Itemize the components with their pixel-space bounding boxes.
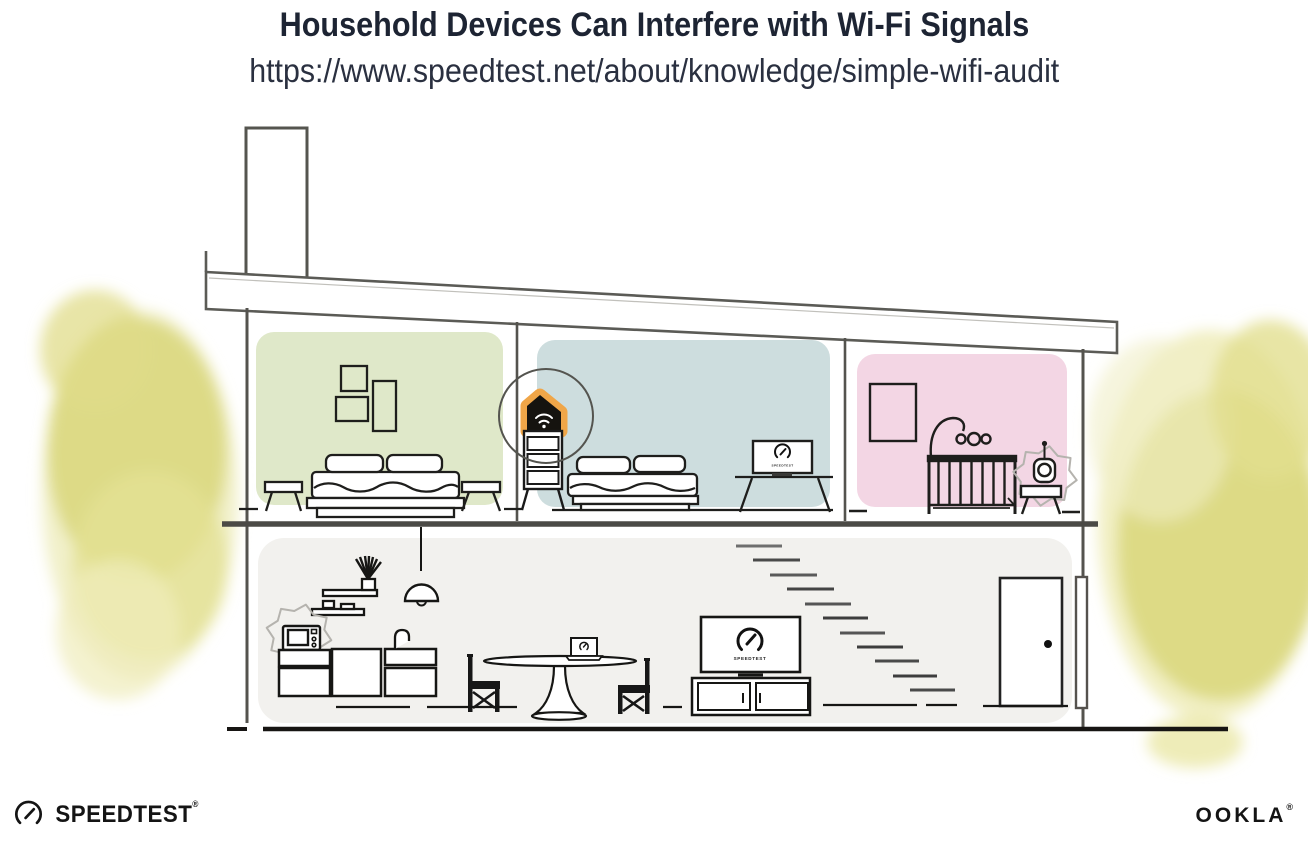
house-illustration: SPEEDTEST — [0, 0, 1308, 861]
watercolor-tree-left — [40, 290, 238, 700]
watercolor-tree-right — [1088, 320, 1308, 768]
downspout — [1076, 577, 1087, 708]
ookla-logo: OOKLA® — [1196, 804, 1296, 828]
trademark-symbol: ® — [192, 799, 199, 809]
speedtest-gauge-icon — [14, 800, 43, 829]
shelf-cup — [323, 601, 334, 608]
chimney — [246, 128, 307, 283]
laptop-icon — [566, 638, 602, 660]
desktop-monitor: SPEEDTEST — [753, 441, 812, 476]
plant-pot — [362, 579, 375, 590]
tv-screen-label: SPEEDTEST — [734, 656, 767, 661]
speedtest-wordmark: SPEEDTEST® — [55, 801, 199, 829]
trademark-symbol: ® — [1286, 802, 1296, 812]
ookla-wordmark: OOKLA® — [1196, 804, 1296, 827]
television: SPEEDTEST — [701, 617, 800, 675]
monitor-screen-label: SPEEDTEST — [772, 464, 794, 468]
door-knob — [1044, 640, 1052, 648]
media-console — [692, 678, 810, 715]
shelf-bowl — [341, 604, 354, 609]
bed-2 — [568, 456, 698, 510]
speedtest-logo: SPEEDTEST® — [14, 800, 204, 829]
door — [1000, 578, 1062, 706]
microwave-icon — [283, 626, 320, 650]
